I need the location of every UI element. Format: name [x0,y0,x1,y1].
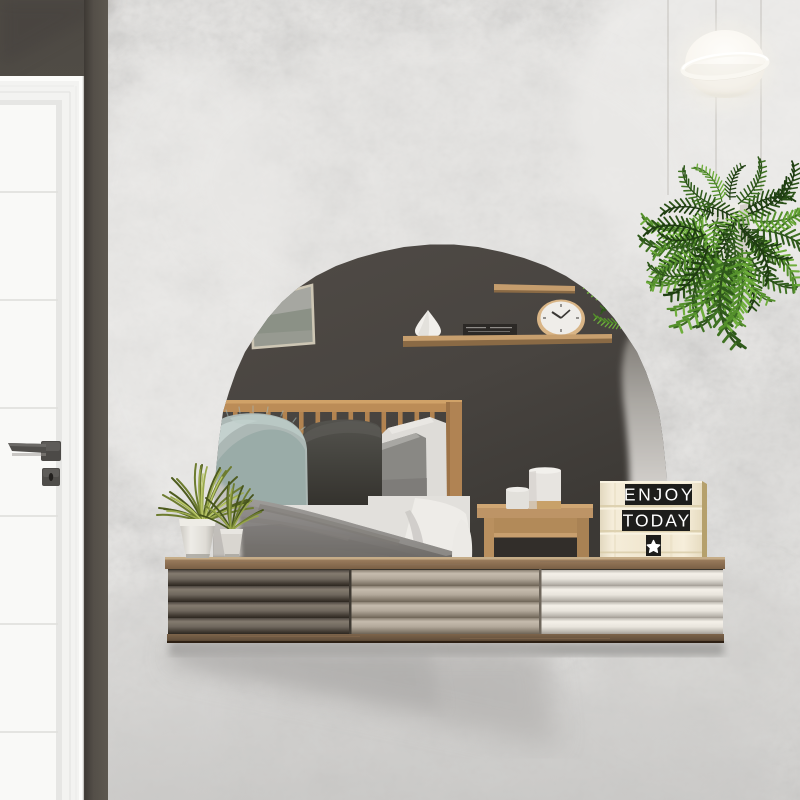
svg-text:ENJOY: ENJOY [624,485,695,505]
svg-text:TODAY: TODAY [623,511,692,531]
